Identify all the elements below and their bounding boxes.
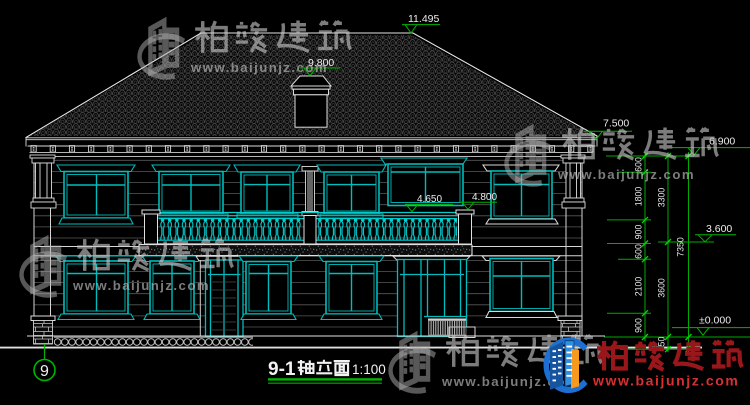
svg-text:900: 900 (634, 225, 644, 240)
svg-text:7.500: 7.500 (603, 118, 629, 130)
svg-text:2100: 2100 (634, 277, 644, 297)
svg-text:900: 900 (634, 318, 644, 333)
svg-text:3300: 3300 (657, 188, 667, 208)
svg-text:4.650: 4.650 (417, 194, 442, 205)
svg-text:3600: 3600 (657, 278, 667, 298)
svg-text:1:100: 1:100 (352, 362, 386, 377)
svg-text:3.600: 3.600 (706, 223, 732, 235)
svg-text:11.495: 11.495 (408, 13, 439, 25)
svg-text:1800: 1800 (634, 187, 644, 207)
svg-text:www.baijunjz.com: www.baijunjz.com (592, 373, 739, 389)
svg-text:4.800: 4.800 (472, 192, 497, 203)
svg-text:9: 9 (40, 363, 49, 380)
svg-text:7350: 7350 (676, 237, 686, 257)
svg-text:600: 600 (634, 244, 644, 259)
svg-text:±0.000: ±0.000 (699, 315, 731, 327)
svg-text:9-1: 9-1 (268, 359, 296, 380)
